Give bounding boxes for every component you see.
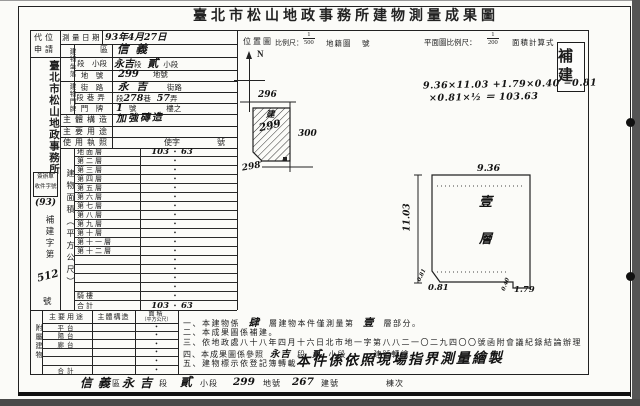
north-cross-line (234, 80, 265, 81)
sheet-no-label: 號 (362, 40, 370, 48)
note-3: 三、依地政處八十八年四月十六日北市地一字第八八二一〇二九四〇〇號函附會議紀錄結論… (183, 339, 582, 347)
frame-line (630, 6, 631, 397)
floor-label: 合計 (74, 301, 137, 311)
cadastral-map-label: 地籍圖 (326, 40, 352, 48)
case-number-suffix: 號 (43, 297, 52, 306)
applicant-line2: 申請 (31, 44, 59, 56)
lane-p1: 段 (116, 94, 124, 103)
bottom-unit-label: 棟次 (386, 380, 404, 388)
receipt-line2: 收件字號 (34, 183, 57, 193)
building-location-group-label: 建物坐落 (61, 46, 74, 80)
license-label: 使用執照 (63, 139, 110, 147)
north-arrow-head-icon (246, 51, 252, 59)
note-5: 五、建物標示依登記簿轉載 (183, 360, 297, 368)
street-row-value: 永吉 街路 (118, 82, 182, 93)
lane-hw1: 278 (124, 93, 144, 104)
decimal-dot: • (135, 366, 178, 374)
attached-row: • (42, 349, 178, 358)
parcel-300-label: 300 (298, 130, 317, 139)
decimal-dot: • (169, 256, 181, 264)
case-number-value: 512 (36, 269, 60, 284)
scale-numerator: 1 (487, 31, 499, 39)
floor-area-rows: 地面層 103 • 63 第二層 • 第三層 • 第四層 • 第五層 (74, 148, 237, 310)
floor-area-frac: 63 (181, 147, 237, 157)
bottom-building-value: 267 (292, 377, 314, 388)
table-line (112, 44, 113, 148)
office-name-vertical: 臺北市松山地政事務所 (34, 60, 58, 170)
frame-line-thick (18, 392, 631, 396)
attached-col-use: 主要用途 (44, 314, 90, 321)
plan-dim-chamfer: 0.81 (428, 284, 449, 293)
decimal-dot: • (169, 184, 181, 192)
decimal-dot: • (169, 283, 181, 291)
attached-rows: 平台 • 陽台 • 廊台 • • • 合計 (42, 323, 178, 374)
applicant-line1: 代位 (31, 32, 59, 44)
decimal-dot: • (169, 229, 181, 237)
bottom-subsection-label: 小段 (200, 380, 218, 388)
bottom-section-value: 永吉 (122, 377, 158, 389)
bottom-parcel-value: 299 (233, 377, 255, 388)
decimal-dot: • (169, 148, 181, 156)
floor-area-int: 103 (137, 301, 169, 311)
note-1-text: 層部分。 (384, 319, 422, 328)
attached-group-label: 附屬建物 (31, 313, 42, 371)
decimal-dot: • (169, 247, 181, 255)
decimal-dot: • (169, 166, 181, 174)
location-map-title: 位置圖 (243, 38, 273, 46)
lane-row-value: 段278巷 57弄 (116, 94, 177, 104)
district-value: 信義 (117, 44, 154, 56)
plan-room-label-char1: 壹 (479, 196, 492, 209)
receipt-number-box: 簽辦單 收件字號 (33, 172, 58, 197)
plan-scale-fraction: 1 200 (487, 31, 499, 46)
parcel-296-label: 296 (256, 91, 279, 100)
subsection-value-hw: 貳 (147, 57, 158, 70)
attached-row: 合計 • (42, 366, 178, 375)
frame-line (18, 6, 631, 7)
floor-label: 騎樓 (74, 291, 137, 301)
table-line (30, 374, 589, 375)
case-number-prefix: 補建字第 (40, 215, 54, 269)
floor-area-int: 103 (137, 147, 169, 157)
decimal-dot: • (169, 193, 181, 201)
north-label: N (257, 50, 264, 59)
usage-label: 主要用途 (63, 128, 110, 136)
floor-area-group-label: 建物面積（平方公尺） (61, 150, 74, 308)
structure-label: 主體構造 (63, 116, 110, 124)
floor-area-frac: 63 (181, 301, 237, 311)
punch-hole-icon (626, 118, 635, 127)
page-title: 臺北市松山地政事務所建物測量成果圖 (178, 10, 514, 24)
floor-row: • (74, 265, 237, 274)
scan-edge-top (0, 0, 640, 1)
plan-dim-notch-width: 1.79 (514, 286, 535, 295)
attached-col-structure: 主體構造 (93, 314, 134, 321)
lane-label: 段巷弄 (74, 94, 110, 102)
bottom-district-label: 區 (112, 380, 120, 388)
attached-use-label: 廊台 (42, 339, 92, 349)
bottom-building-label: 建號 (321, 380, 339, 388)
scale-denominator: 500 (303, 39, 315, 46)
parcel-number-hw: 299 (118, 69, 139, 80)
note-1-text: 層建物本件僅測量第 (269, 319, 355, 328)
floor-row: 第十二層 • (74, 247, 237, 256)
bottom-parcel-label: 地號 (263, 380, 281, 388)
decimal-dot: • (169, 302, 181, 310)
note-1-text: 一、本建物係 (183, 319, 240, 328)
street-value-hw: 永吉 (118, 81, 155, 93)
scale-denominator: 200 (487, 39, 499, 46)
table-line (102, 30, 103, 44)
attached-use-label: 合計 (42, 365, 92, 375)
lane-hw2: 57 (157, 93, 170, 104)
parcel-suffix: 地號 (153, 70, 168, 79)
decimal-dot: • (169, 211, 181, 219)
decimal-dot: • (169, 274, 181, 282)
area-formula-line2: ×0.81×½ ＝ 103.63 (429, 92, 539, 103)
decimal-dot: • (135, 348, 178, 356)
plan-scale-label: 平面圖比例尺： (424, 39, 477, 47)
decimal-dot: • (135, 323, 178, 331)
floor-label: 第十二層 (74, 246, 137, 256)
floor-row: • (74, 274, 237, 283)
lane-p3: 弄 (170, 94, 178, 103)
door-suffix2: 樓之 (166, 104, 181, 113)
door-plate-group-label: 建物門牌 (61, 83, 74, 113)
floor-row: • (74, 256, 237, 265)
applicant-box: 代位 申請 (31, 32, 59, 56)
floor-row: 合計 103 • 63 (74, 301, 237, 310)
survey-result-sheet: 臺北市松山地政事務所建物測量成果圖 補建 代位 申請 臺北市松山地政事務所 簽辦… (0, 0, 640, 406)
plan-dim-left: 11.03 (404, 203, 413, 231)
door-suffix1: 號 (129, 104, 137, 113)
note-1: 一、本建物係 肆 層建物本件僅測量第 壹 層部分。 (183, 318, 422, 329)
decimal-dot: • (169, 265, 181, 273)
bottom-subsection-value: 貳 (180, 376, 192, 388)
attached-row: 廊台 • (42, 340, 178, 349)
parcel-label: 地 號 (74, 72, 110, 80)
decimal-dot: • (135, 331, 178, 339)
decimal-dot: • (169, 175, 181, 183)
subsection-suffix: 小段 (163, 60, 178, 69)
scan-edge-bottom (0, 399, 640, 406)
receipt-line1: 簽辦單 (34, 173, 57, 183)
location-scale-fraction: 1 500 (303, 31, 315, 46)
decimal-dot: • (169, 238, 181, 246)
location-scale-label: 比例尺： (275, 40, 303, 47)
decimal-dot: • (169, 202, 181, 210)
receipt-year: (93) (35, 199, 56, 208)
section-mid: 段 (134, 60, 142, 69)
plan-dim-top: 9.36 (477, 164, 500, 174)
note-2: 二、本成果圖係補建。 (183, 329, 278, 337)
area-calc-label: 面積計算式 (512, 39, 555, 47)
bottom-district-value: 信義 (80, 377, 116, 389)
scale-numerator: 1 (303, 31, 315, 39)
section-label: 段 小段 (74, 60, 110, 68)
punch-hole-icon (626, 272, 635, 281)
decimal-dot: • (135, 340, 178, 348)
district-label: 區 (74, 46, 108, 54)
lane-p2: 巷 (143, 94, 151, 103)
plan-room-label-char2: 層 (479, 233, 492, 246)
note-4-text: 四、本成果圖係參照 (183, 350, 264, 359)
license-suffix: 號 (217, 139, 225, 147)
field-survey-stamp-text: 本件係依照現場指界測量繪製 (296, 351, 504, 369)
decimal-dot: • (169, 292, 181, 300)
bottom-section-label: 段 (159, 380, 167, 388)
structure-value: 加強磚造 (116, 113, 164, 125)
survey-date-label: 測量日期 (62, 34, 102, 42)
license-row-value: 使字 號 (112, 139, 235, 147)
street-label: 街 路 (74, 84, 110, 92)
license-value: 使字 (164, 139, 180, 147)
street-suffix: 街路 (167, 83, 182, 92)
scan-edge-right (632, 0, 640, 406)
note-1-hw-level: 壹 (363, 317, 375, 329)
frame-line (18, 6, 19, 396)
decimal-dot: • (135, 357, 178, 365)
door-number-hw: 1 (116, 103, 123, 114)
decimal-dot: • (169, 220, 181, 228)
parcel-row-value: 299 地號 (118, 70, 168, 80)
door-label: 門 牌 (74, 105, 110, 113)
decimal-dot: • (169, 157, 181, 165)
table-line (178, 310, 179, 374)
